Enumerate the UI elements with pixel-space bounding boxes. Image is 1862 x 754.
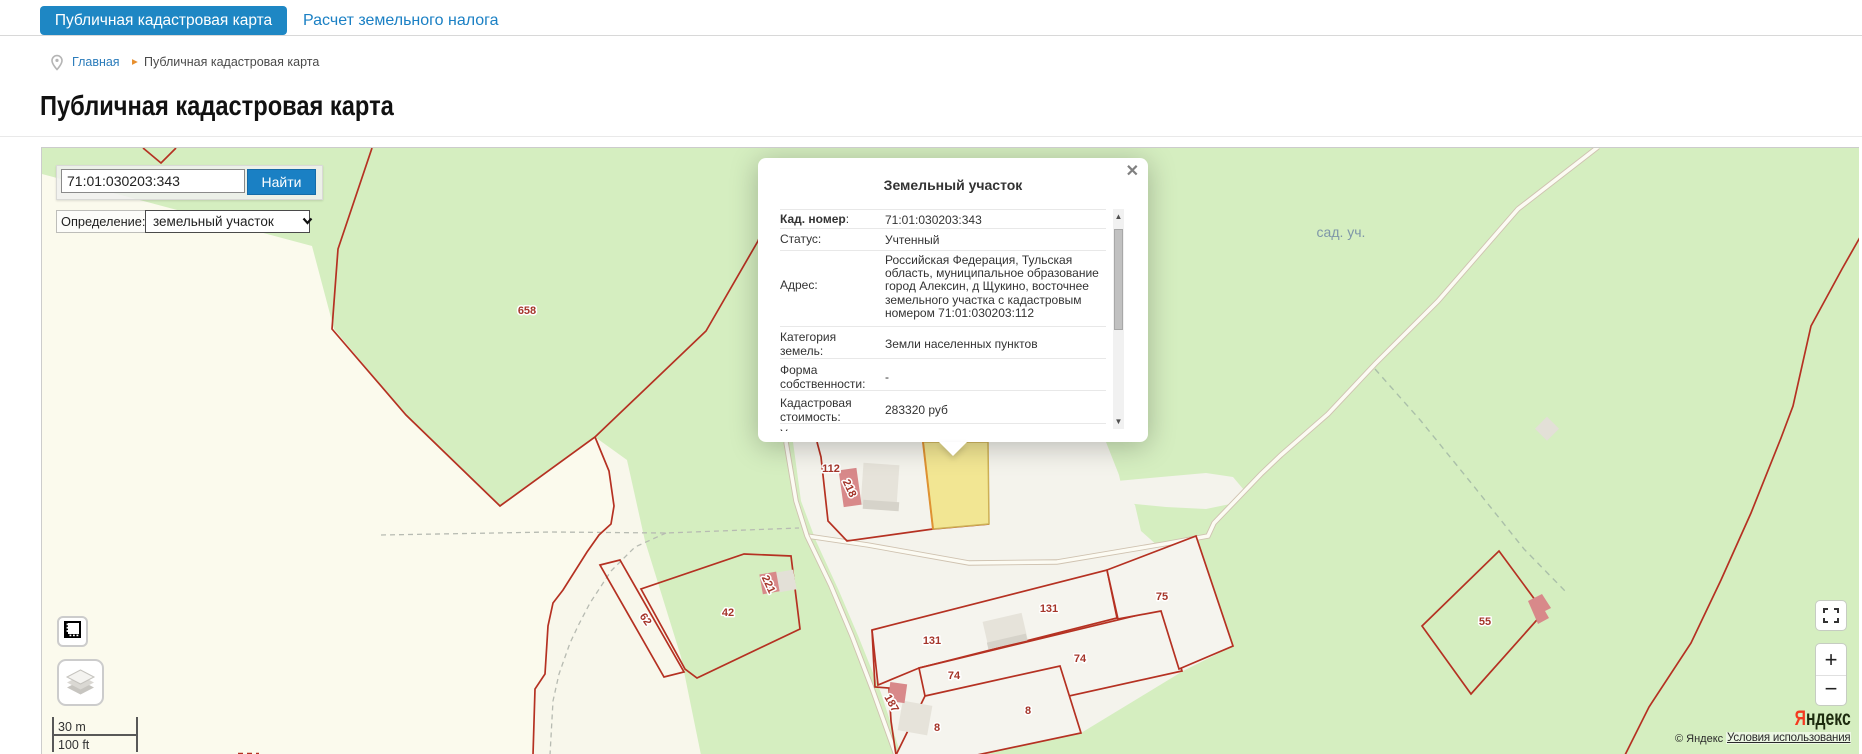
svg-text:74: 74 <box>1074 653 1087 665</box>
svg-text:8: 8 <box>934 722 940 734</box>
svg-text:131: 131 <box>1040 603 1058 615</box>
svg-text:131: 131 <box>923 635 941 647</box>
svg-text:658: 658 <box>518 305 536 317</box>
svg-text:55: 55 <box>1479 616 1491 628</box>
svg-text:112: 112 <box>822 463 840 475</box>
svg-text:сад. уч.: сад. уч. <box>1317 224 1366 240</box>
svg-text:74: 74 <box>948 670 961 682</box>
svg-text:8: 8 <box>1025 705 1031 717</box>
svg-text:42: 42 <box>722 607 734 619</box>
svg-text:75: 75 <box>1156 591 1168 603</box>
